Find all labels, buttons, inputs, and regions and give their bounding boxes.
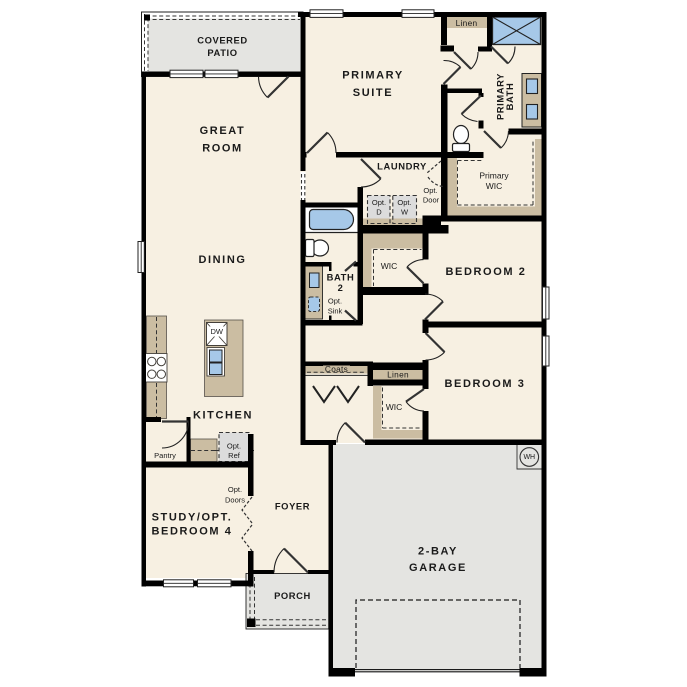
svg-text:BEDROOM 2: BEDROOM 2 bbox=[445, 266, 526, 278]
svg-text:DINING: DINING bbox=[198, 254, 246, 266]
svg-text:LAUNDRY: LAUNDRY bbox=[377, 161, 427, 172]
svg-text:W: W bbox=[401, 208, 409, 217]
svg-text:GARAGE: GARAGE bbox=[409, 562, 467, 574]
svg-text:COVERED: COVERED bbox=[197, 35, 248, 46]
svg-text:Coats: Coats bbox=[325, 364, 348, 374]
svg-text:Doors: Doors bbox=[225, 496, 245, 505]
svg-text:2-BAY: 2-BAY bbox=[418, 546, 458, 558]
svg-text:Linen: Linen bbox=[387, 370, 409, 380]
svg-text:DW: DW bbox=[210, 327, 223, 336]
svg-text:BATH: BATH bbox=[327, 272, 355, 283]
svg-text:PATIO: PATIO bbox=[207, 47, 237, 58]
svg-text:Opt.: Opt. bbox=[423, 186, 437, 195]
svg-text:Opt.: Opt. bbox=[228, 485, 242, 494]
svg-text:ROOM: ROOM bbox=[202, 143, 243, 155]
svg-text:FOYER: FOYER bbox=[275, 501, 310, 512]
svg-text:PORCH: PORCH bbox=[274, 590, 311, 601]
svg-text:Primary: Primary bbox=[479, 171, 509, 181]
svg-text:Door: Door bbox=[423, 196, 440, 205]
svg-text:GREAT: GREAT bbox=[200, 125, 246, 137]
svg-text:BATH: BATH bbox=[504, 83, 515, 111]
svg-text:Pantry: Pantry bbox=[154, 451, 176, 460]
svg-text:Opt.: Opt. bbox=[397, 198, 411, 207]
svg-text:SUITE: SUITE bbox=[353, 87, 393, 99]
svg-text:Ref: Ref bbox=[228, 451, 241, 460]
svg-text:WH: WH bbox=[523, 454, 535, 461]
svg-text:WIC: WIC bbox=[381, 261, 398, 271]
svg-text:Linen: Linen bbox=[456, 18, 478, 28]
svg-text:Opt.: Opt. bbox=[328, 297, 342, 306]
svg-text:PRIMARY: PRIMARY bbox=[342, 70, 404, 82]
svg-text:KITCHEN: KITCHEN bbox=[193, 410, 253, 422]
svg-text:Sink: Sink bbox=[328, 307, 343, 316]
svg-text:WIC: WIC bbox=[486, 181, 503, 191]
svg-text:WIC: WIC bbox=[386, 402, 403, 412]
svg-text:BEDROOM 4: BEDROOM 4 bbox=[151, 526, 232, 538]
svg-text:STUDY/OPT.: STUDY/OPT. bbox=[152, 512, 233, 524]
svg-text:2: 2 bbox=[338, 282, 344, 293]
svg-text:Opt.: Opt. bbox=[227, 442, 241, 451]
svg-text:D: D bbox=[376, 208, 382, 217]
svg-text:BEDROOM 3: BEDROOM 3 bbox=[444, 378, 525, 390]
svg-text:Opt.: Opt. bbox=[372, 198, 386, 207]
